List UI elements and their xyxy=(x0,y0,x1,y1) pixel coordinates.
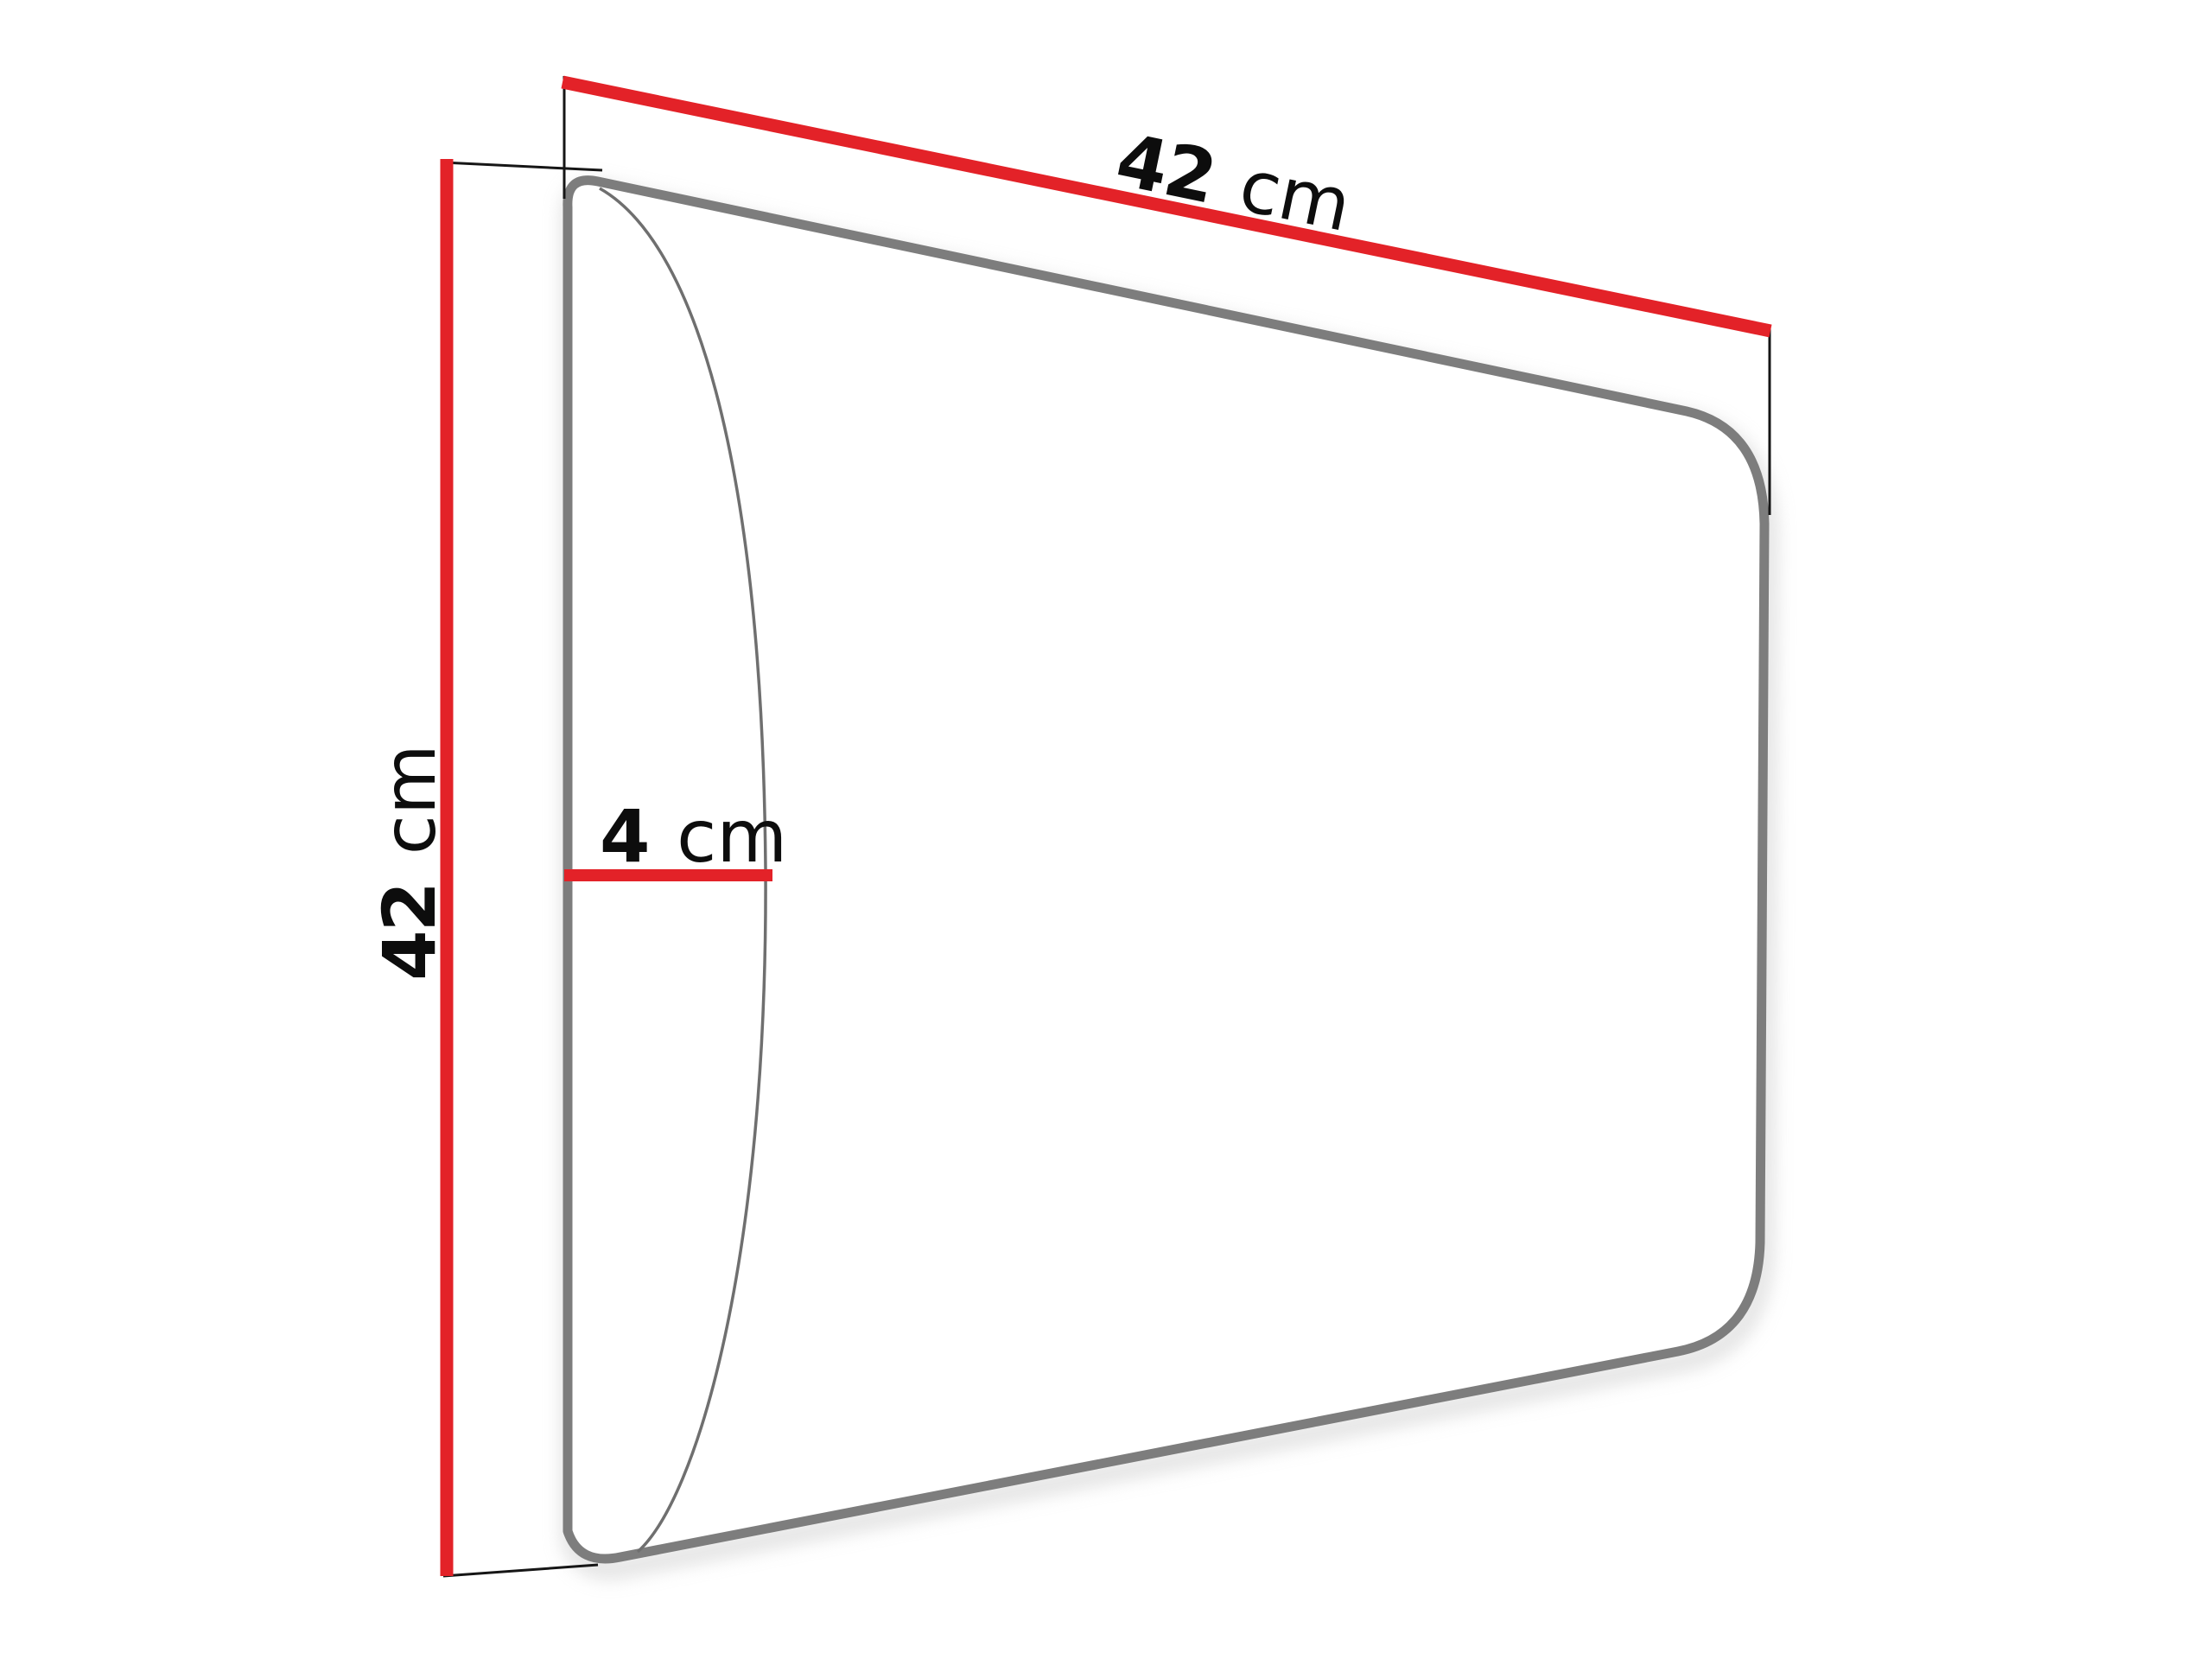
depth-value: 4 xyxy=(600,794,648,879)
depth-unit: cm xyxy=(677,794,787,879)
height-value: 42 xyxy=(367,883,452,981)
depth-dimension-label: 4 cm xyxy=(600,794,787,879)
dimension-diagram: 42 cm 42 cm 4 cm xyxy=(0,0,2212,1659)
height-dimension-label: 42 cm xyxy=(367,744,452,981)
height-unit: cm xyxy=(367,744,452,855)
